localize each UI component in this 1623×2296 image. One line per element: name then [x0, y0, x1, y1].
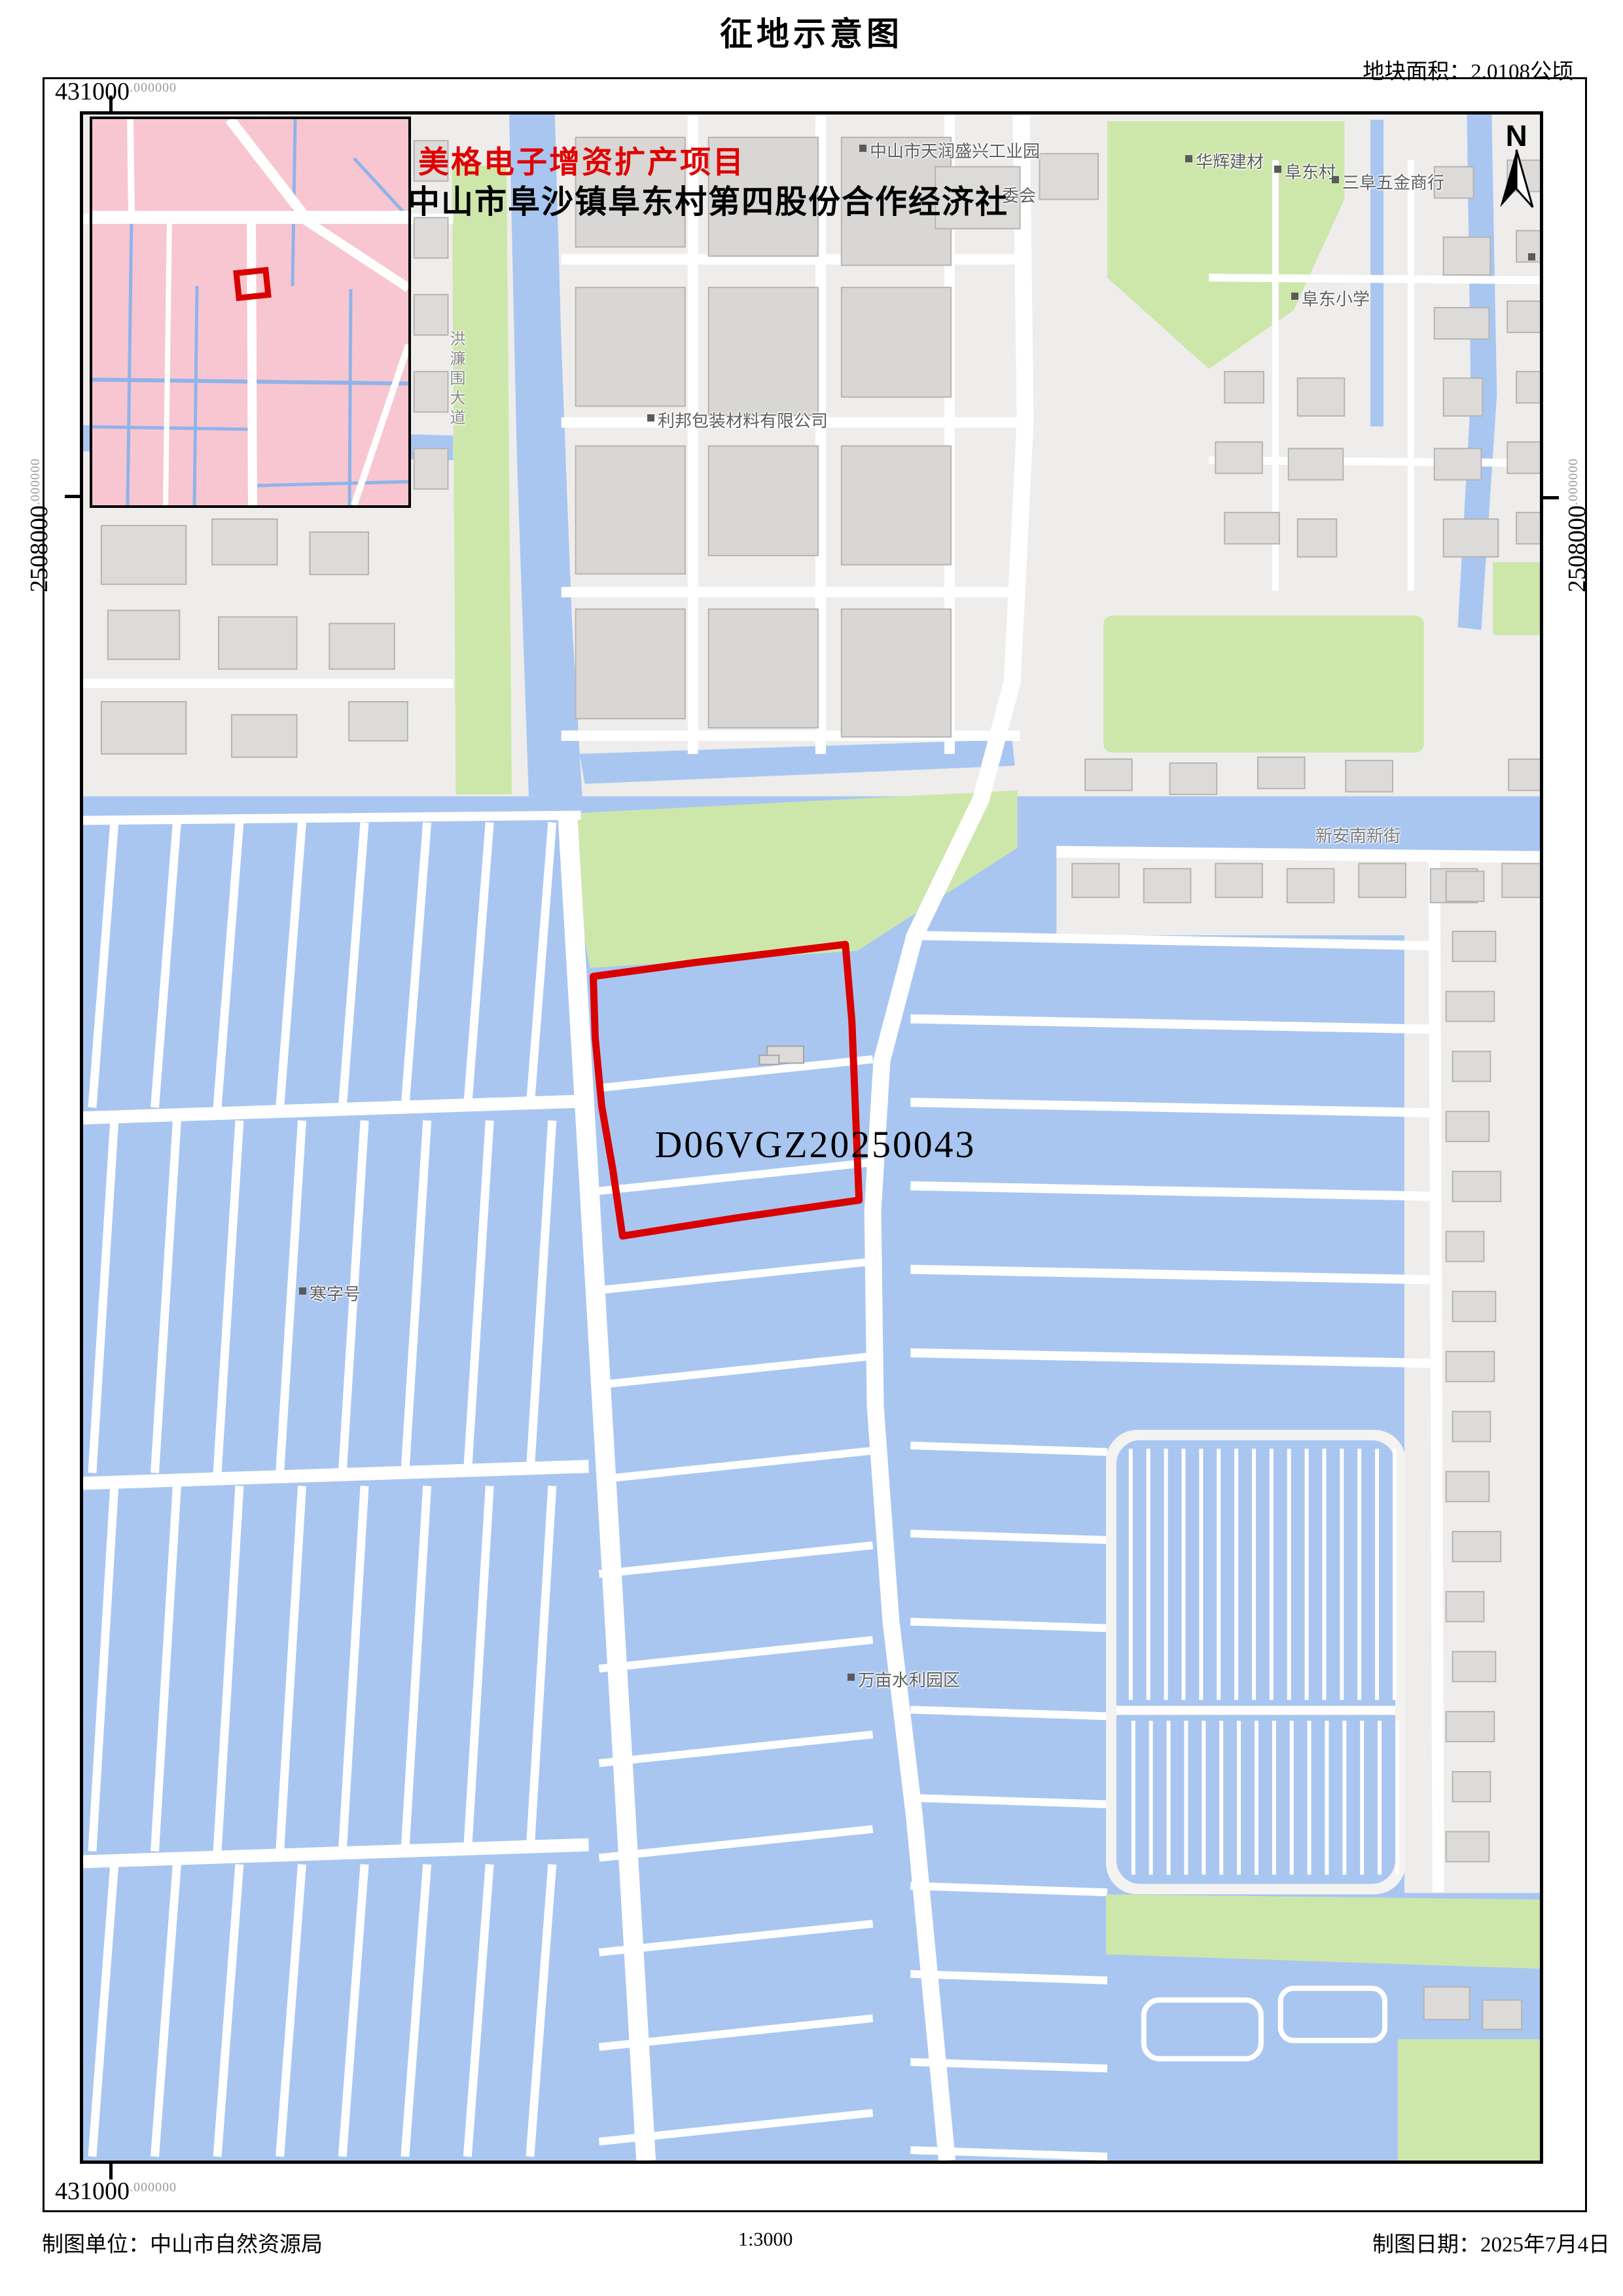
- map-label-hanzihao: 寒字号: [299, 1281, 361, 1305]
- map-label-fu-clipped: 阜: [1528, 247, 1543, 271]
- poi-marker-icon: [847, 1674, 855, 1681]
- poi-marker-icon: [1185, 155, 1192, 162]
- coord-label-bottom: 431000.000000: [55, 2177, 177, 2206]
- project-name-overlay: 美格电子增资扩产项目: [418, 137, 745, 182]
- land-acquisition-map-page: 征地示意图 地块面积：2.0108公顷 431000.000000 431000…: [0, 0, 1623, 2296]
- coord-tick-top: [109, 96, 113, 113]
- poi-marker-icon: [1528, 253, 1535, 260]
- north-label: N: [1506, 119, 1527, 152]
- map-label-sanfu-store: 三阜五金商行: [1332, 170, 1444, 194]
- map-label-huahui: 华辉建材: [1185, 149, 1264, 173]
- poi-marker-icon: [299, 1287, 306, 1295]
- owner-name-overlay: 中山市阜沙镇阜东村第四股份合作经济社: [408, 176, 1008, 223]
- poi-marker-icon: [647, 414, 654, 422]
- poi-marker-icon: [1291, 293, 1298, 300]
- footer-agency: 制图单位：中山市自然资源局: [42, 2227, 323, 2258]
- coord-label-top: 431000.000000: [55, 77, 177, 106]
- poi-marker-icon: [1332, 176, 1339, 183]
- map-label-industrial-park: 中山市天润盛兴工业园: [859, 138, 1040, 162]
- map-label-xinan-street: 新安南新街: [1315, 823, 1400, 847]
- coord-label-left: 2508000.000000: [25, 458, 54, 592]
- footer-date: 制图日期：2025年7月4日: [1372, 2227, 1610, 2258]
- inset-canvas: [92, 119, 408, 505]
- coord-tick-right: [1542, 496, 1559, 499]
- map-label-fudong-village: 阜东村: [1274, 159, 1336, 183]
- map-label-fudong-school: 阜东小学: [1291, 286, 1370, 310]
- main-map: D06VGZ20250043N 中山市天润盛兴工业园 华辉建材 阜东村 三阜五金…: [80, 111, 1543, 2164]
- inset-locator-map: [90, 117, 411, 508]
- footer-scale: 1:3000: [738, 2229, 793, 2251]
- poi-marker-icon: [859, 145, 866, 152]
- coord-label-right: 2508000.000000: [1563, 458, 1592, 592]
- page-title: 征地示意图: [720, 8, 903, 55]
- poi-marker-icon: [1274, 166, 1281, 173]
- map-label-honglianwei-road: 洪濂围大道: [444, 331, 467, 429]
- map-label-wanmu-park: 万亩水利园区: [847, 1667, 960, 1691]
- parcel-code-label: D06VGZ20250043: [655, 1124, 976, 1166]
- map-label-libang-company: 利邦包装材料有限公司: [647, 408, 828, 432]
